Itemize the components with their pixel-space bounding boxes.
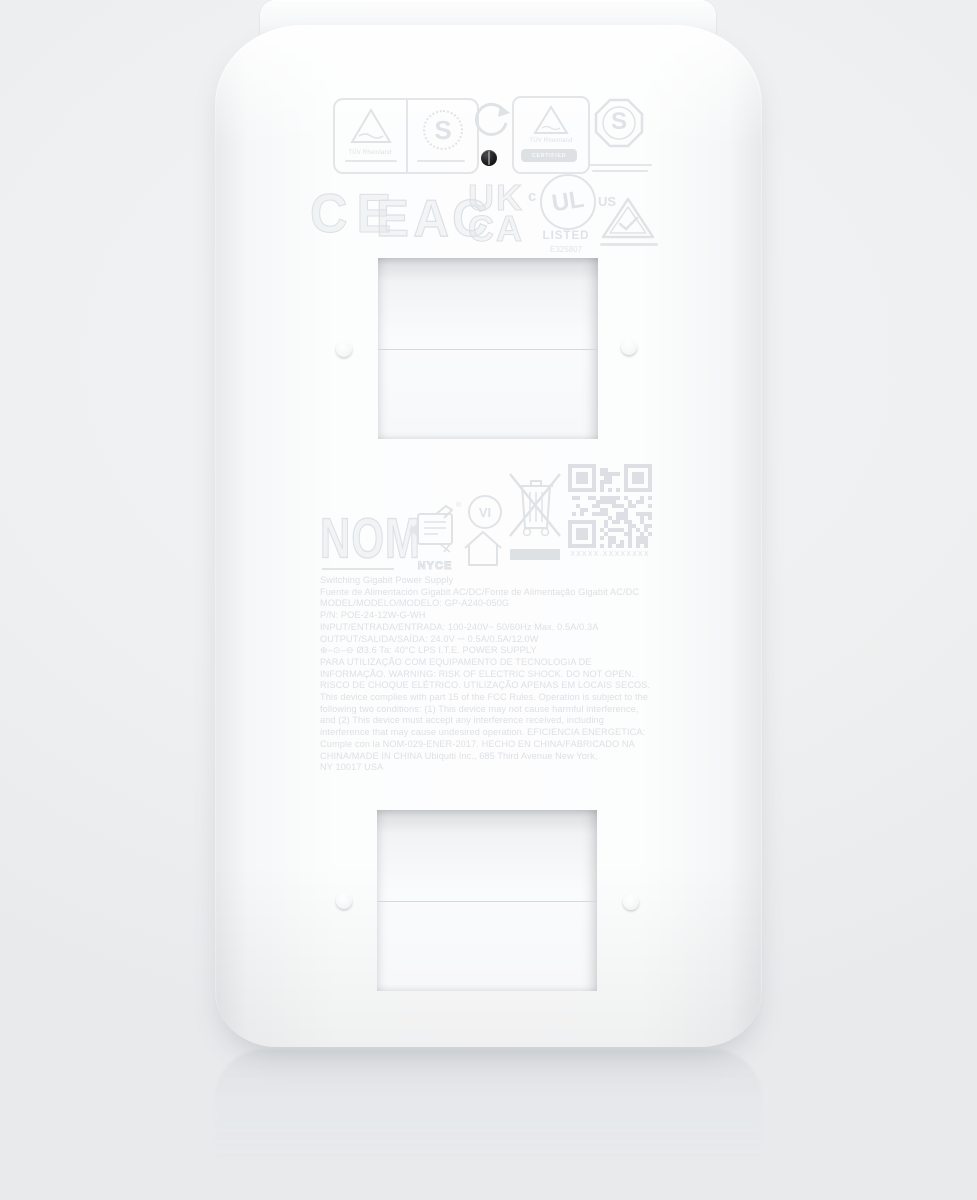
tuv-brand-label: TÜV Rheinland — [299, 150, 441, 156]
badge-divider — [406, 100, 408, 172]
micro-text-bar — [588, 164, 652, 166]
spec-label-block: Switching Gigabit Power Supply Fuente de… — [320, 575, 656, 774]
spec-line: following two conditions: (1) This devic… — [320, 704, 656, 716]
spec-line: OUTPUT/SALIDA/SAÍDA: 24.0V ⎓ 0.5A/0.5A/1… — [320, 634, 656, 646]
micro-text-bar — [417, 160, 465, 162]
alignment-bump — [336, 893, 352, 909]
registered-mark: ® — [456, 502, 461, 509]
ul-circle-icon: UL — [540, 174, 596, 230]
weee-bin-icon — [506, 470, 564, 542]
mounting-recess-bottom — [377, 810, 597, 991]
spec-line: interference that may cause undesired op… — [320, 727, 656, 739]
weee-solid-bar — [510, 549, 560, 560]
tuv-triangle-icon — [345, 106, 397, 146]
alignment-bump — [621, 339, 637, 355]
spec-line: NY 10017 USA — [320, 762, 656, 774]
recycle-arrow-icon — [472, 99, 512, 139]
tuv-rheinland-badge: TÜV Rheinland S — [333, 98, 479, 174]
spec-line: MODEL/MODELO/MODELO: GP-A240-050G — [320, 598, 656, 610]
spec-line: and (2) This device must accept any inte… — [320, 715, 656, 727]
s-mark-circle-icon: S — [423, 110, 463, 150]
ul-listed-label: LISTED — [534, 230, 598, 242]
indoor-use-house-icon — [460, 528, 506, 568]
ukca-mark: UK CA — [468, 182, 524, 244]
spec-line: RISCO DE CHOQUE ELÉTRICO. UTILIZAÇÃO APE… — [320, 680, 656, 692]
ukca-line-ca: CA — [468, 213, 524, 244]
micro-text-bar — [592, 170, 648, 172]
recess-seam — [377, 901, 597, 902]
efficiency-vi-label: VI — [479, 505, 491, 520]
qr-code — [568, 464, 652, 548]
product-photo-stage: TÜV Rheinland S TÜV Rheinland CERTIFIED … — [0, 0, 977, 1200]
s-mark-letter: S — [434, 117, 451, 143]
spec-line: Switching Gigabit Power Supply — [320, 575, 656, 587]
spec-line: INPUT/ENTRADA/ENTRADA: 100-240V~ 50/60Hz… — [320, 622, 656, 634]
nom-underline — [322, 568, 394, 570]
alignment-bump — [623, 894, 639, 910]
spec-line: Cumple con la NOM-029-ENER-2017. HECHO E… — [320, 739, 656, 751]
spec-line: INFORMAÇÃO. WARNING: RISK OF ELECTRIC SH… — [320, 669, 656, 681]
alignment-bump — [336, 341, 352, 357]
certified-band: CERTIFIED — [521, 149, 577, 162]
mounting-recess-top — [378, 258, 598, 439]
screw-head — [481, 150, 497, 166]
spec-line: P/N: POE-24-12W-G-WH — [320, 610, 656, 622]
ul-letters: UL — [550, 188, 585, 217]
nyce-device-icon — [406, 504, 464, 558]
floor-reflection — [215, 1049, 762, 1194]
micro-text-bar — [345, 160, 397, 162]
nyce-name: NYCE — [406, 560, 464, 572]
efficiency-vi-icon: VI — [468, 495, 502, 529]
spec-line: Fuente de Alimentación Gigabit AC/DC/Fon… — [320, 587, 656, 599]
tuv-certified-badge: TÜV Rheinland CERTIFIED — [512, 96, 590, 174]
tuv-brand-label: TÜV Rheinland — [514, 138, 588, 144]
ul-c-label: c — [528, 188, 536, 205]
recess-seam — [378, 349, 598, 350]
micro-text-bar — [600, 243, 658, 246]
qr-caption: XXXXX.XXXXXXXX — [564, 551, 656, 558]
spec-line: ⊕–⊙–⊖ Ø3.6 Ta: 40°C LPS I.T.E. POWER SUP… — [320, 645, 656, 657]
nyce-mark: ® NYCE — [406, 504, 464, 576]
spec-line: This device complies with part 15 of the… — [320, 692, 656, 704]
spec-line: CHINA/MADE IN CHINA Ubiquiti Inc., 685 T… — [320, 751, 656, 763]
s-octagon-letter: S — [592, 108, 646, 136]
tuv-triangle-icon — [531, 104, 571, 136]
rcm-triangle-icon — [600, 196, 656, 240]
ul-file-number: E325807 — [536, 245, 596, 254]
spec-line: PARA UTILIZAÇÃO COM EQUIPAMENTO DE TECNO… — [320, 657, 656, 669]
